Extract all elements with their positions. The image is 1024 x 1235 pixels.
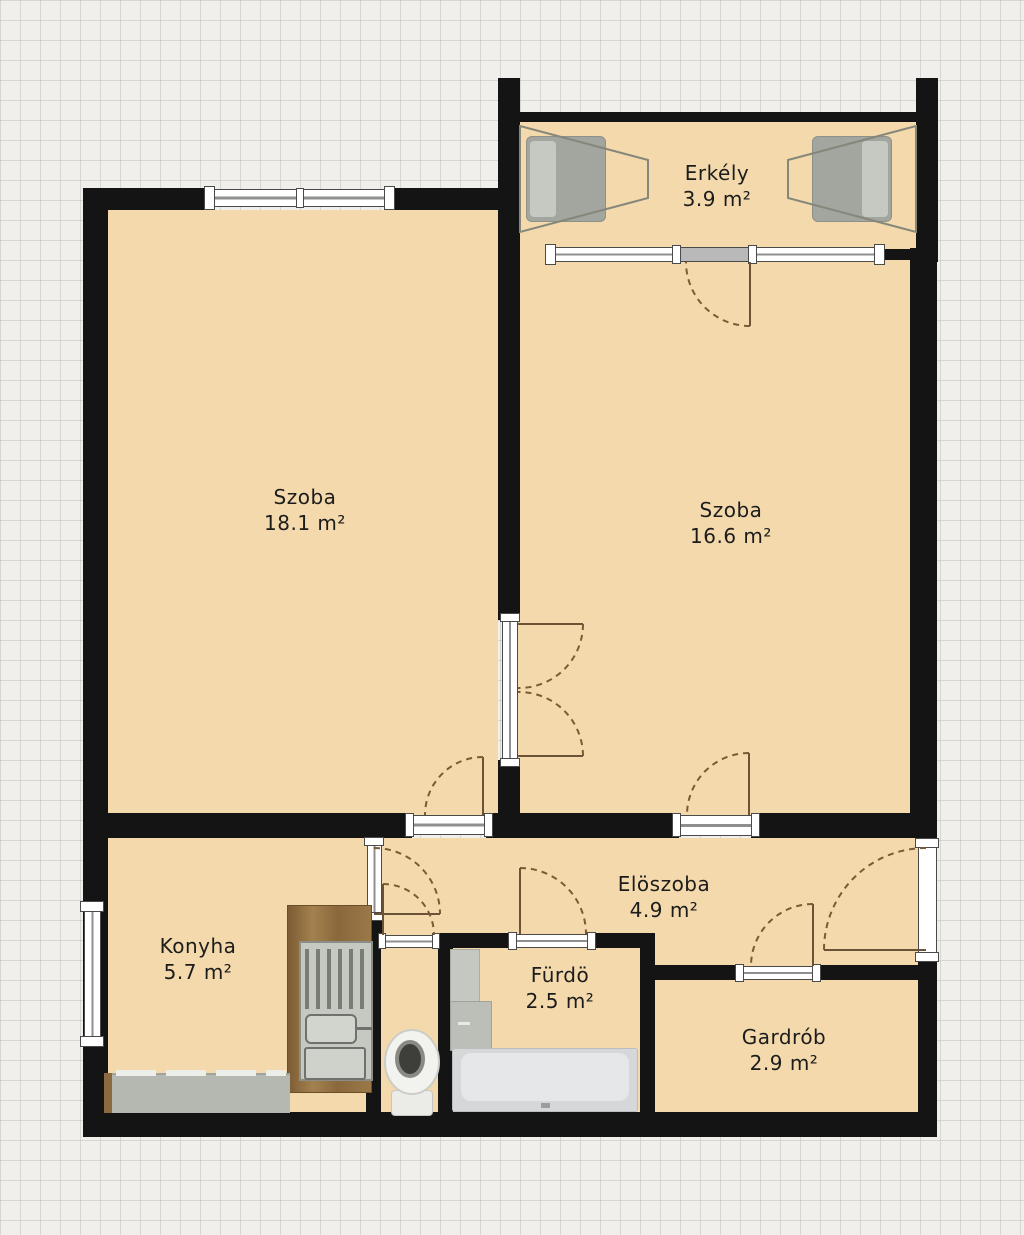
room-label-szoba-2: Szoba 16.6 m² — [631, 497, 831, 549]
room-name: Szoba — [631, 497, 831, 523]
room-area: 2.9 m² — [684, 1050, 884, 1076]
room-name: Elöszoba — [564, 871, 764, 897]
room-name: Szoba — [205, 484, 405, 510]
room1-door-arc — [425, 757, 483, 815]
balcony-door-arc — [686, 262, 750, 326]
room-label-gardrob: Gardrób 2.9 m² — [684, 1024, 884, 1076]
room-area: 4.9 m² — [564, 897, 764, 923]
room-area: 16.6 m² — [631, 523, 831, 549]
wc-door-arc — [383, 884, 434, 935]
floor-plan: Erkély 3.9 m² Szoba 18.1 m² Szoba 16.6 m… — [0, 0, 1024, 1235]
double-door-arc-top — [518, 624, 583, 688]
room-area: 2.5 m² — [460, 988, 660, 1014]
double-door-arc-bottom — [518, 692, 583, 756]
room-area: 5.7 m² — [98, 959, 298, 985]
room-area: 18.1 m² — [205, 510, 405, 536]
room-name: Gardrób — [684, 1024, 884, 1050]
room-name: Fürdö — [460, 962, 660, 988]
room-label-szoba-1: Szoba 18.1 m² — [205, 484, 405, 536]
room-area: 3.9 m² — [617, 186, 817, 212]
room-name: Konyha — [98, 933, 298, 959]
room-label-erkely: Erkély 3.9 m² — [617, 160, 817, 212]
toilet-bowl-hole — [397, 1042, 423, 1076]
room2-door-arc — [687, 753, 749, 815]
room-name: Erkély — [617, 160, 817, 186]
entrance-door-arc — [824, 848, 926, 950]
room-label-eloszoba: Elöszoba 4.9 m² — [564, 871, 764, 923]
room-label-konyha: Konyha 5.7 m² — [98, 933, 298, 985]
room-label-furdo: Fürdö 2.5 m² — [460, 962, 660, 1014]
